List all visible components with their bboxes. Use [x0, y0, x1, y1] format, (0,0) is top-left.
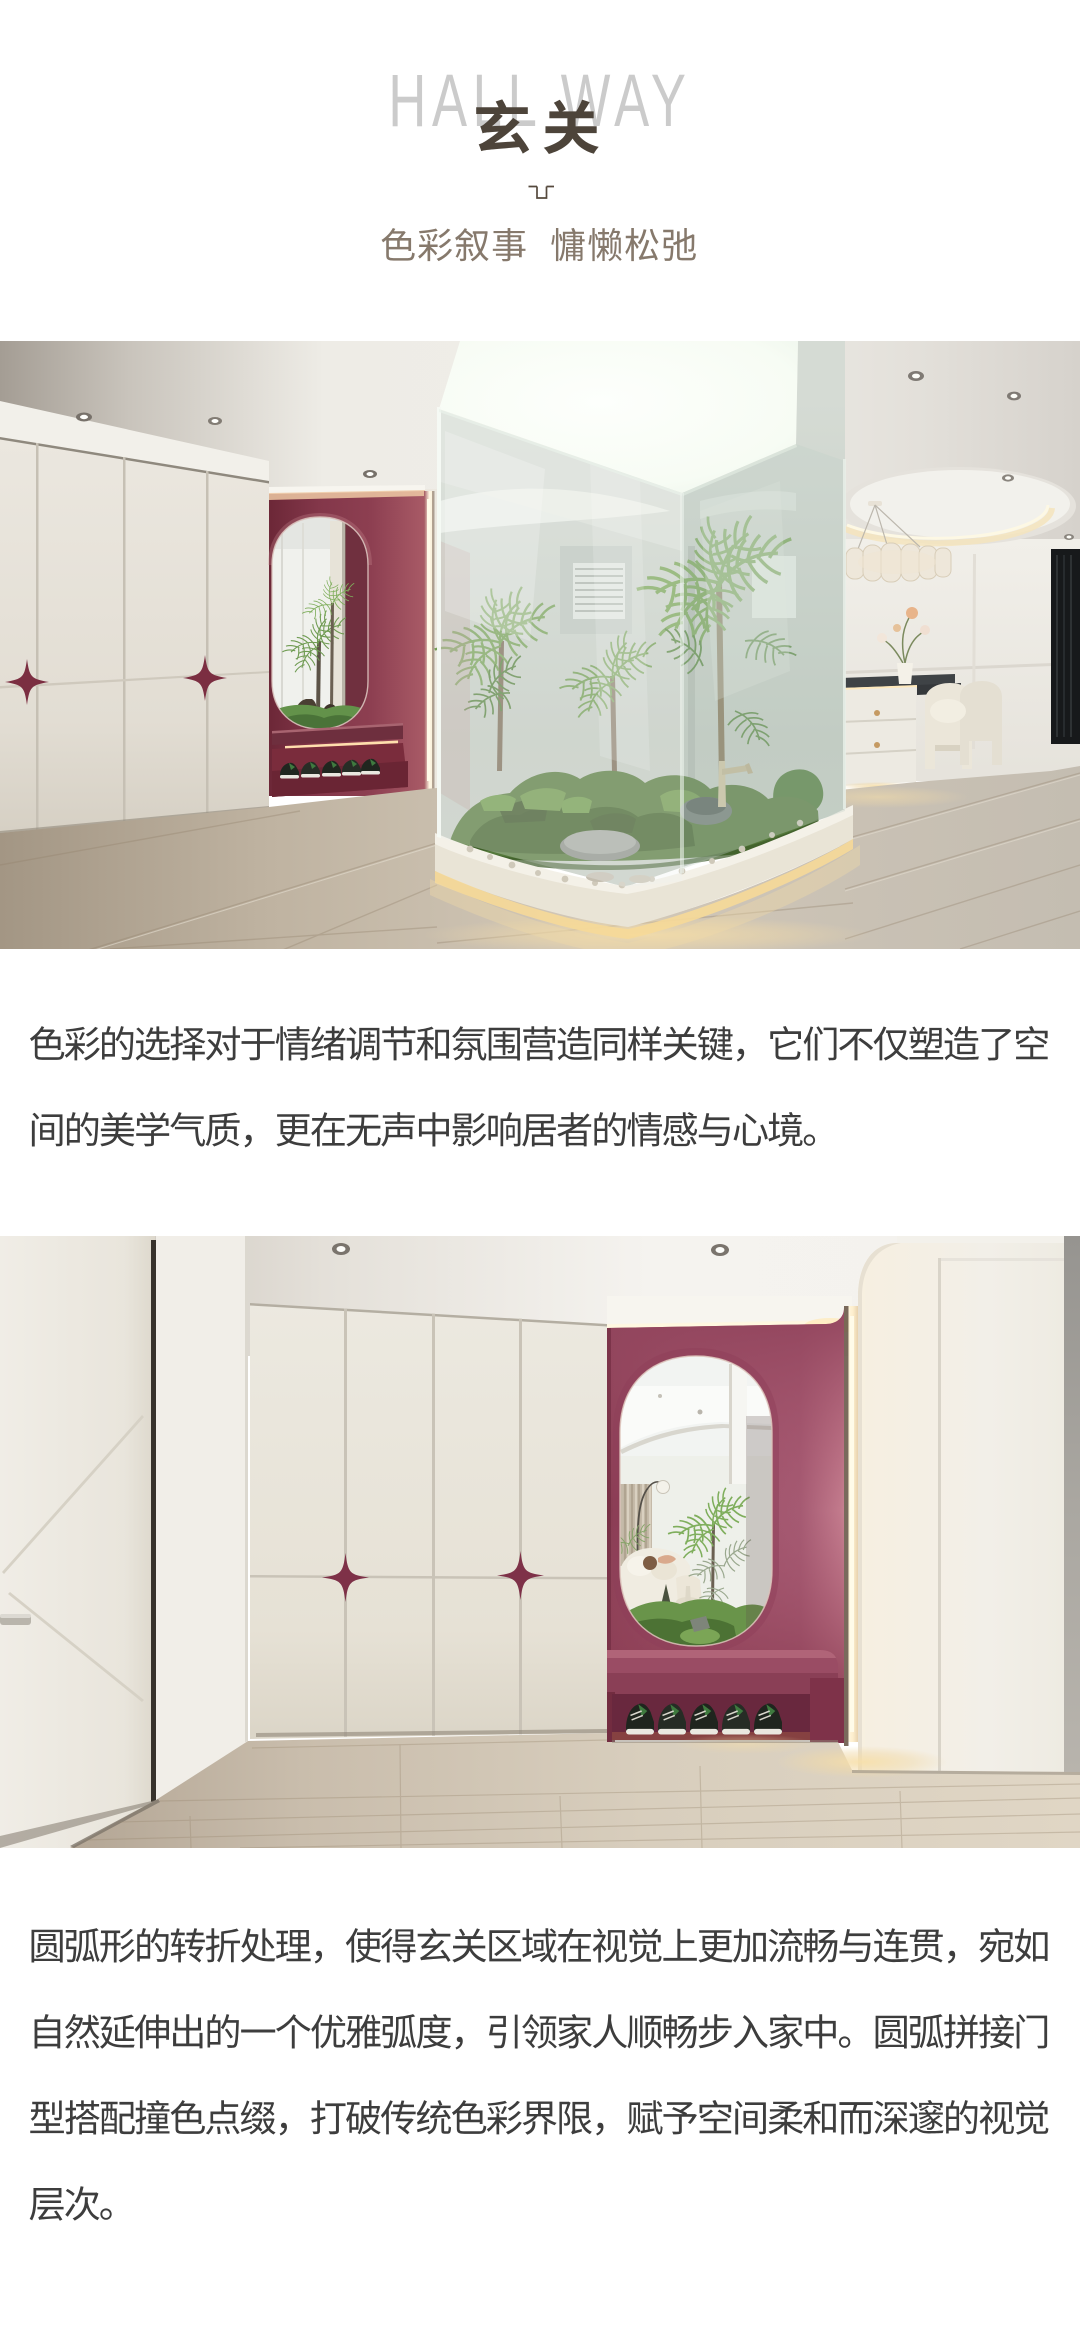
- svg-text:HALL WAY: HALL WAY: [388, 59, 691, 142]
